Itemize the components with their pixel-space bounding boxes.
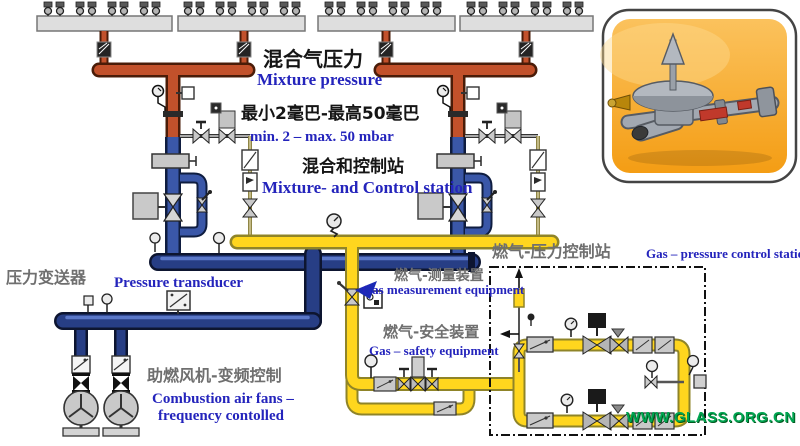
piping-diagram	[0, 0, 800, 446]
manifold-bar	[318, 16, 455, 31]
outlet-gauges	[645, 356, 706, 389]
flange	[448, 111, 468, 117]
label-combustion-fans-en-2: frequency contolled	[158, 409, 284, 425]
manifold-bar	[460, 16, 593, 31]
label-gas-measurement-en: Gas measurement equipment	[362, 283, 524, 297]
gas-pressure-regulator-photo	[600, 10, 796, 182]
diagram-canvas: 混合气压力 Mixture pressure 最小2毫巴-最高50毫巴 min.…	[0, 0, 800, 446]
burner-icons	[44, 2, 583, 16]
label-mixture-control-station-zh: 混合和控制站	[302, 159, 404, 177]
fan-icon	[64, 391, 138, 425]
label-mixture-pressure-zh: 混合气压力	[263, 49, 363, 70]
gauge-icon	[84, 233, 225, 314]
manifold-bar	[37, 16, 172, 31]
gauge-icon	[565, 318, 577, 337]
gauge-icon	[561, 394, 573, 413]
label-mixture-control-station-en: Mixture- and Control station	[262, 179, 472, 197]
label-pressure-transducer-en: Pressure transducer	[114, 276, 243, 292]
combustion-air-fans	[63, 330, 139, 436]
manifold-bar	[178, 16, 305, 31]
pressure-transducer-icon	[167, 291, 190, 314]
label-gas-pressure-station-zh: 燃气-压力控制站	[492, 244, 611, 261]
label-combustion-fans-en-1: Combustion air fans –	[152, 392, 294, 408]
label-gas-pressure-station-en: Gas – pressure control station	[646, 247, 800, 261]
label-pressure-range-zh: 最小2毫巴-最高50毫巴	[241, 106, 420, 124]
label-gas-safety-en: Gas – safety equipment	[369, 344, 499, 358]
gas-header	[237, 214, 552, 242]
label-combustion-fans-zh: 助燃风机-变频控制	[147, 368, 282, 385]
gauge-icon	[365, 355, 377, 378]
label-pressure-range-en: min. 2 – max. 50 mbar	[250, 130, 394, 146]
flange	[163, 111, 183, 117]
control-valve-icon	[133, 193, 467, 221]
label-mixture-pressure-en: Mixture pressure	[257, 71, 382, 89]
label-gas-safety-zh: 燃气-安全装置	[383, 325, 479, 341]
watermark: WWW.GLASS.ORG.CN	[626, 409, 796, 426]
label-pressure-transducer-zh: 压力变送器	[6, 270, 86, 287]
gauge-icon	[327, 214, 341, 237]
burner-manifolds	[37, 2, 593, 31]
